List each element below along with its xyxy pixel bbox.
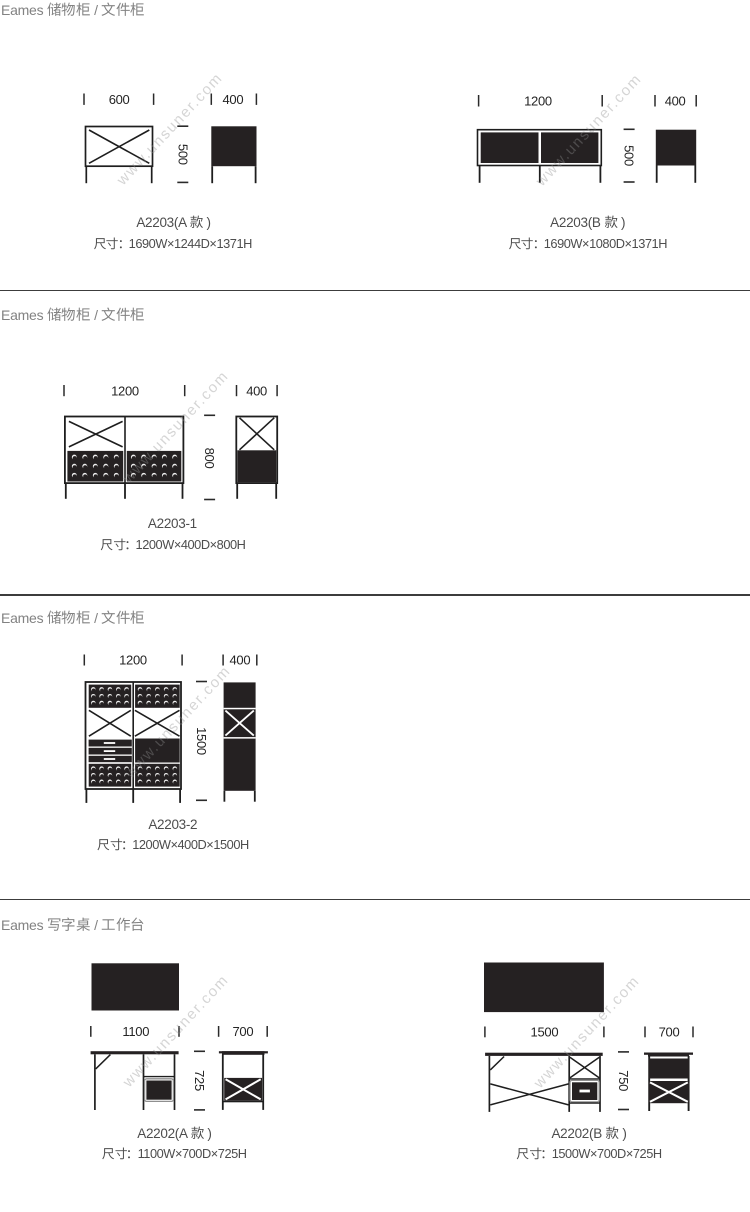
svg-text:400: 400 [230, 653, 251, 668]
svg-text:1200: 1200 [119, 653, 147, 668]
svg-text:500: 500 [622, 145, 637, 166]
svg-text:400: 400 [246, 383, 267, 398]
svg-text:725: 725 [192, 1070, 207, 1091]
svg-text:500: 500 [175, 144, 190, 165]
svg-text:700: 700 [659, 1024, 680, 1039]
svg-text:700: 700 [233, 1024, 254, 1039]
svg-text:750: 750 [616, 1070, 631, 1091]
svg-text:400: 400 [665, 94, 686, 109]
svg-text:1500: 1500 [531, 1024, 559, 1039]
svg-text:1200: 1200 [524, 94, 552, 109]
svg-text:1100: 1100 [122, 1024, 149, 1039]
svg-text:800: 800 [202, 448, 217, 469]
svg-text:400: 400 [223, 92, 244, 107]
svg-text:1200: 1200 [111, 383, 139, 398]
svg-text:600: 600 [109, 92, 130, 107]
svg-text:1500: 1500 [194, 727, 209, 755]
